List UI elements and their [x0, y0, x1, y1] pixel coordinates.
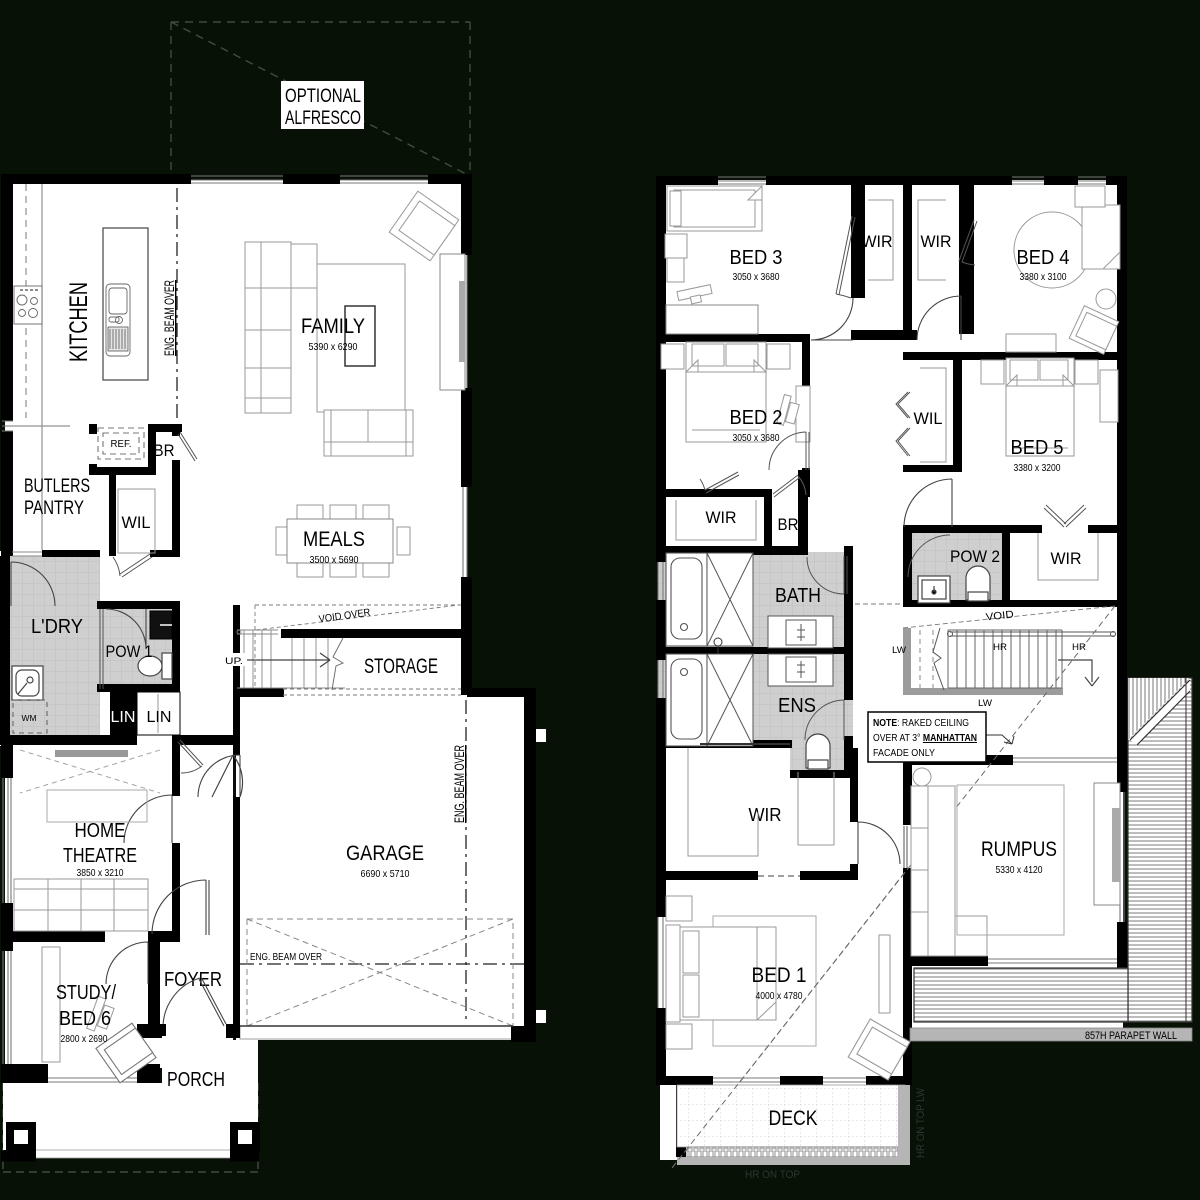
svg-text:WIR: WIR — [862, 232, 893, 251]
svg-text:3850 x 3210: 3850 x 3210 — [77, 867, 124, 879]
svg-text:ENG. BEAM OVER: ENG. BEAM OVER — [161, 280, 177, 356]
svg-text:ALFRESCO: ALFRESCO — [285, 108, 361, 129]
svg-text:PANTRY: PANTRY — [24, 498, 84, 519]
svg-text:4000 x 4780: 4000 x 4780 — [756, 990, 803, 1002]
svg-text:FOYER: FOYER — [164, 969, 222, 991]
svg-text:FACADE ONLY: FACADE ONLY — [873, 748, 935, 759]
svg-text:BED 1: BED 1 — [752, 964, 807, 987]
svg-text:ENS: ENS — [778, 695, 816, 717]
svg-text:BED 4: BED 4 — [1017, 247, 1070, 269]
svg-text:BUTLERS: BUTLERS — [24, 476, 90, 497]
svg-text:BATH: BATH — [775, 585, 821, 607]
svg-text:HR: HR — [1072, 642, 1086, 653]
svg-text:WIR: WIR — [1051, 549, 1082, 568]
svg-text:POW 1: POW 1 — [106, 642, 153, 661]
svg-text:OVER AT 3° MANHATTAN: OVER AT 3° MANHATTAN — [873, 733, 977, 744]
svg-text:HR ON TOP: HR ON TOP — [745, 1169, 800, 1181]
svg-text:OPTIONAL: OPTIONAL — [285, 86, 361, 107]
svg-text:PORCH: PORCH — [167, 1069, 225, 1091]
svg-text:3380 x 3100: 3380 x 3100 — [1020, 271, 1067, 283]
svg-text:5390 x 6290: 5390 x 6290 — [309, 341, 358, 353]
svg-text:WIL: WIL — [122, 513, 151, 532]
svg-text:5330 x 4120: 5330 x 4120 — [996, 864, 1043, 876]
svg-text:FAMILY: FAMILY — [301, 315, 365, 338]
svg-text:HOME: HOME — [75, 820, 126, 842]
svg-text:ENG. BEAM OVER: ENG. BEAM OVER — [451, 745, 467, 823]
svg-text:BR: BR — [154, 441, 175, 460]
svg-text:GARAGE: GARAGE — [346, 842, 424, 865]
svg-text:HR: HR — [993, 642, 1007, 653]
svg-text:L'DRY: L'DRY — [31, 616, 83, 638]
svg-text:BR: BR — [778, 515, 799, 534]
svg-text:KITCHEN: KITCHEN — [65, 282, 93, 362]
svg-text:BED 2: BED 2 — [730, 407, 783, 429]
svg-text:3380 x 3200: 3380 x 3200 — [1014, 462, 1061, 474]
svg-text:NOTE: RAKED CEILING: NOTE: RAKED CEILING — [873, 718, 969, 729]
svg-text:2800 x 2690: 2800 x 2690 — [61, 1033, 108, 1045]
svg-text:UP.: UP. — [225, 656, 243, 667]
svg-text:857H PARAPET WALL: 857H PARAPET WALL — [1085, 1030, 1177, 1042]
svg-text:HR ON TOP LW: HR ON TOP LW — [915, 1087, 927, 1158]
svg-text:REF.: REF. — [111, 439, 132, 450]
svg-text:BED 5: BED 5 — [1011, 437, 1064, 459]
svg-text:THEATRE: THEATRE — [63, 845, 137, 867]
svg-text:LW: LW — [978, 698, 992, 709]
svg-text:3500 x 5690: 3500 x 5690 — [310, 554, 359, 566]
svg-text:6690 x 5710: 6690 x 5710 — [361, 868, 410, 880]
svg-text:WIR: WIR — [921, 232, 952, 251]
svg-text:WM: WM — [22, 713, 37, 723]
svg-text:WIR: WIR — [749, 805, 782, 825]
svg-text:STORAGE: STORAGE — [364, 655, 438, 678]
svg-text:3050 x 3680: 3050 x 3680 — [733, 271, 780, 283]
svg-text:BED 6: BED 6 — [59, 1008, 111, 1030]
svg-text:BED 3: BED 3 — [730, 247, 783, 269]
svg-text:POW 2: POW 2 — [950, 547, 1000, 566]
svg-text:WIR: WIR — [706, 508, 737, 527]
svg-text:WIL: WIL — [914, 409, 943, 428]
svg-text:ENG. BEAM OVER: ENG. BEAM OVER — [250, 951, 322, 963]
svg-text:DECK: DECK — [769, 1107, 818, 1130]
svg-text:LIN: LIN — [111, 709, 136, 726]
svg-text:LIN: LIN — [147, 709, 172, 726]
svg-text:LW: LW — [892, 645, 906, 656]
svg-text:STUDY/: STUDY/ — [56, 982, 116, 1004]
svg-text:RUMPUS: RUMPUS — [981, 838, 1057, 861]
svg-text:3050 x 3680: 3050 x 3680 — [733, 432, 780, 444]
svg-text:MEALS: MEALS — [303, 528, 365, 551]
